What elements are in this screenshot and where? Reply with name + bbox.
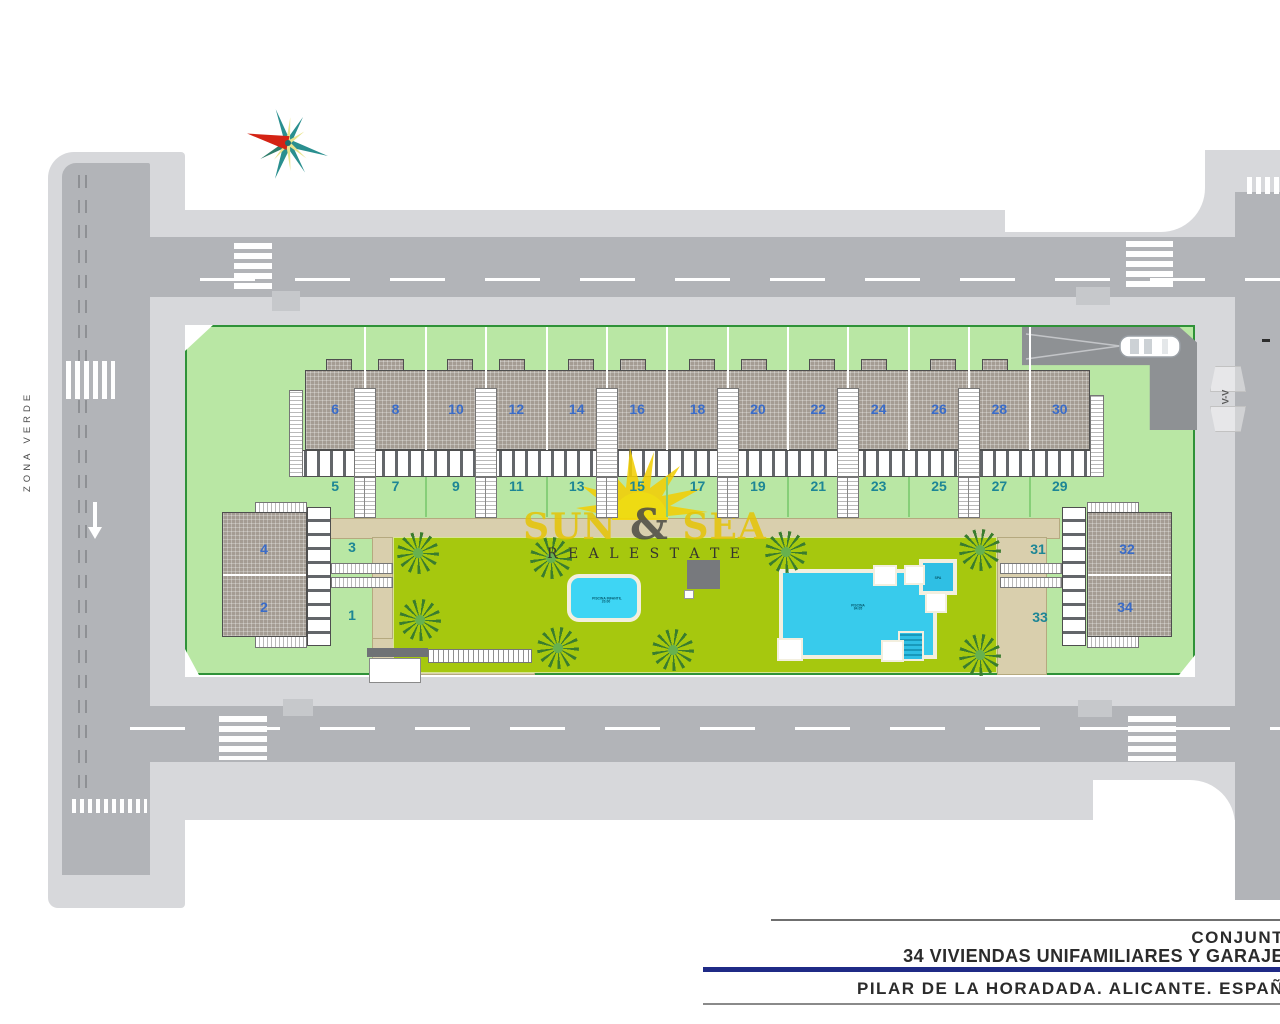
watermark-amp: & <box>630 500 669 549</box>
unit-number-top: 18 <box>690 402 706 416</box>
right-block-roof-divider <box>1088 574 1171 576</box>
roof-bulkhead <box>378 359 404 371</box>
crosswalk-bottom-road-right <box>1128 716 1176 761</box>
unit-divider <box>546 327 548 450</box>
unit-number: 32 <box>1119 542 1135 556</box>
palm-tree-icon <box>652 629 694 671</box>
garden-fence <box>546 477 548 517</box>
unit-number-bottom: 19 <box>750 479 766 493</box>
lane-dashes-left-road-b <box>85 175 87 793</box>
titleblock-rule-top <box>771 919 1280 921</box>
titleblock-line1: CONJUNT <box>700 928 1280 948</box>
row-end-stair-left <box>289 390 303 477</box>
unit-divider <box>666 327 668 450</box>
unit-number-bottom: 23 <box>871 479 887 493</box>
unit-number-bottom: 27 <box>992 479 1008 493</box>
unit-number-bottom: 29 <box>1052 479 1068 493</box>
pool-main-label: PISCINA84.05 <box>843 604 872 611</box>
crosswalk-left-road-bottom <box>72 799 147 813</box>
unit-number: 3 <box>348 540 356 554</box>
pool-kids: PISCINA INFANTIL20.00 <box>567 574 641 622</box>
right-block-roof <box>1087 512 1172 637</box>
offsite-block-bottom-right <box>1093 780 1235 890</box>
unit-number-top: 10 <box>448 402 464 416</box>
vv-marker-shape-top <box>1210 366 1246 392</box>
roof-bulkhead <box>982 359 1008 371</box>
right-block-terraces <box>1062 507 1086 646</box>
garden-fence <box>908 477 910 517</box>
unit-number: 1 <box>348 608 356 622</box>
unit-number: 34 <box>1117 600 1133 614</box>
titleblock-blue-bar <box>703 967 1280 972</box>
unit-number-top: 8 <box>392 402 400 416</box>
unit-number-top: 24 <box>871 402 887 416</box>
curb-stub-bottom-left <box>283 699 313 716</box>
unit-number-bottom: 21 <box>810 479 826 493</box>
stair-shaft-lower <box>596 477 618 518</box>
right-block-pergola-bottom <box>1087 636 1139 648</box>
path-right-corridor <box>997 537 1047 675</box>
crosswalk-left-road-top <box>66 361 115 399</box>
unit-number: 4 <box>260 542 268 556</box>
car-icon <box>1022 327 1197 367</box>
pool-platform-2 <box>904 565 925 585</box>
left-block-terraces <box>307 507 331 646</box>
stair-shaft-lower <box>475 477 497 518</box>
stair-shaft-divider <box>968 478 969 517</box>
titleblock-rule-bottom <box>703 1003 1280 1005</box>
offsite-block-top-right <box>1005 146 1205 232</box>
garden-fence <box>787 477 789 517</box>
left-block-bridge-b <box>331 577 393 588</box>
vv-section-marker: V-V <box>1206 366 1250 432</box>
stair-shaft <box>596 388 618 477</box>
crosswalk-top-road-left <box>234 243 272 289</box>
compass-rose-icon <box>238 96 334 188</box>
utility-shed <box>687 560 720 589</box>
palm-tree-icon <box>537 627 579 669</box>
unit-number-bottom: 17 <box>690 479 706 493</box>
stair-shaft <box>837 388 859 477</box>
stair-shaft-divider <box>485 478 486 517</box>
pool-platform-4 <box>777 638 803 661</box>
utility-box <box>684 590 694 599</box>
road-right <box>1235 192 1280 900</box>
roof-bulkhead <box>568 359 594 371</box>
pool-spa-label: SPA <box>933 576 942 580</box>
unit-number-top: 22 <box>810 402 826 416</box>
unit-number-bottom: 5 <box>331 479 339 493</box>
roof-bulkhead <box>930 359 956 371</box>
stair-shaft-lower <box>958 477 980 518</box>
unit-number-bottom: 13 <box>569 479 585 493</box>
roof-bulkhead <box>620 359 646 371</box>
curb-stub-bottom-right <box>1078 700 1112 717</box>
left-block-roof-divider <box>223 574 306 576</box>
bike-racks <box>428 649 532 663</box>
lane-arrow-head-icon <box>88 527 102 539</box>
site-plan-canvas: ZONA VERDE V-V PISCINA INFANTIL20.00 PIS… <box>0 0 1280 1024</box>
left-block-bridge-a <box>331 563 393 574</box>
palm-tree-icon <box>765 531 807 573</box>
unit-number-top: 28 <box>992 402 1008 416</box>
curb-stub-top-left <box>272 291 300 311</box>
unit-number-bottom: 7 <box>392 479 400 493</box>
pool-kids-label: PISCINA INFANTIL20.00 <box>592 597 620 604</box>
titleblock-line3: PILAR DE LA HORADADA. ALICANTE. ESPAÑ <box>700 979 1280 999</box>
unit-divider <box>425 327 427 450</box>
entrance-kiosk <box>369 658 421 683</box>
stair-shaft <box>958 388 980 477</box>
garden-fence <box>666 477 668 517</box>
unit-number: 33 <box>1032 610 1048 624</box>
unit-number-bottom: 9 <box>452 479 460 493</box>
left-block-roof <box>222 512 307 637</box>
unit-number-top: 6 <box>331 402 339 416</box>
palm-tree-icon <box>397 532 439 574</box>
unit-divider <box>908 327 910 450</box>
garden-fence <box>425 477 427 517</box>
road-tick-mark <box>1262 339 1270 342</box>
pool-platform-3 <box>925 592 947 613</box>
right-block-bridge-a <box>1000 563 1062 574</box>
palm-tree-icon <box>399 599 441 641</box>
pergola-canopy <box>367 648 428 657</box>
stair-shaft-divider <box>847 478 848 517</box>
stair-shaft-lower <box>837 477 859 518</box>
right-block-bridge-b <box>1000 577 1062 588</box>
lane-arrow-icon <box>93 502 97 528</box>
stair-shaft-divider <box>727 478 728 517</box>
pool-platform-1 <box>873 565 897 586</box>
titleblock-line2: 34 VIVIENDAS UNIFAMILIARES Y GARAJE <box>700 946 1280 967</box>
vv-marker-shape-bottom <box>1210 406 1246 432</box>
unit-divider <box>787 327 789 450</box>
watermark-tagline: R E A L E S T A T E <box>520 546 770 562</box>
roof-bulkhead <box>499 359 525 371</box>
curb-stub-top-right <box>1076 287 1110 305</box>
unit-number-top: 26 <box>931 402 947 416</box>
pool-platform-5 <box>881 640 904 662</box>
unit-number-bottom: 11 <box>509 479 524 493</box>
unit-number-bottom: 15 <box>629 479 645 493</box>
crosswalk-bottom-road-left <box>219 716 267 760</box>
row-end-stair-right <box>1090 395 1104 477</box>
roof-bulkhead <box>741 359 767 371</box>
lane-dashes-top-road <box>200 278 1280 281</box>
stair-shaft-lower <box>354 477 376 518</box>
unit-number: 2 <box>260 600 268 614</box>
palm-tree-icon <box>959 529 1001 571</box>
stair-shaft <box>475 388 497 477</box>
zona-verde-label: ZONA VERDE <box>22 362 38 492</box>
lane-dashes-bottom-road <box>130 727 1280 730</box>
roof-bulkhead <box>861 359 887 371</box>
roof-bulkhead <box>809 359 835 371</box>
unit-number-top: 12 <box>509 402 525 416</box>
unit-number-top: 30 <box>1052 402 1068 416</box>
crosswalk-top-road-right <box>1126 241 1173 289</box>
left-block-pergola-bottom <box>255 636 307 648</box>
unit-number: 31 <box>1030 542 1046 556</box>
crosswalk-top-right-stub <box>1247 177 1280 194</box>
stair-shaft <box>354 388 376 477</box>
unit-number-top: 20 <box>750 402 766 416</box>
stair-shaft-divider <box>364 478 365 517</box>
roof-bulkhead <box>689 359 715 371</box>
unit-number-top: 14 <box>569 402 585 416</box>
unit-number-bottom: 25 <box>931 479 947 493</box>
lane-dashes-left-road-a <box>78 175 80 793</box>
stair-shaft-lower <box>717 477 739 518</box>
palm-tree-icon <box>959 634 1001 676</box>
stair-shaft <box>717 388 739 477</box>
unit-number-top: 16 <box>629 402 645 416</box>
garden-fence <box>1029 477 1031 517</box>
stair-shaft-divider <box>606 478 607 517</box>
roof-bulkhead <box>447 359 473 371</box>
roof-bulkhead <box>326 359 352 371</box>
vv-marker-label: V-V <box>1220 390 1230 405</box>
unit-divider <box>1029 327 1031 450</box>
